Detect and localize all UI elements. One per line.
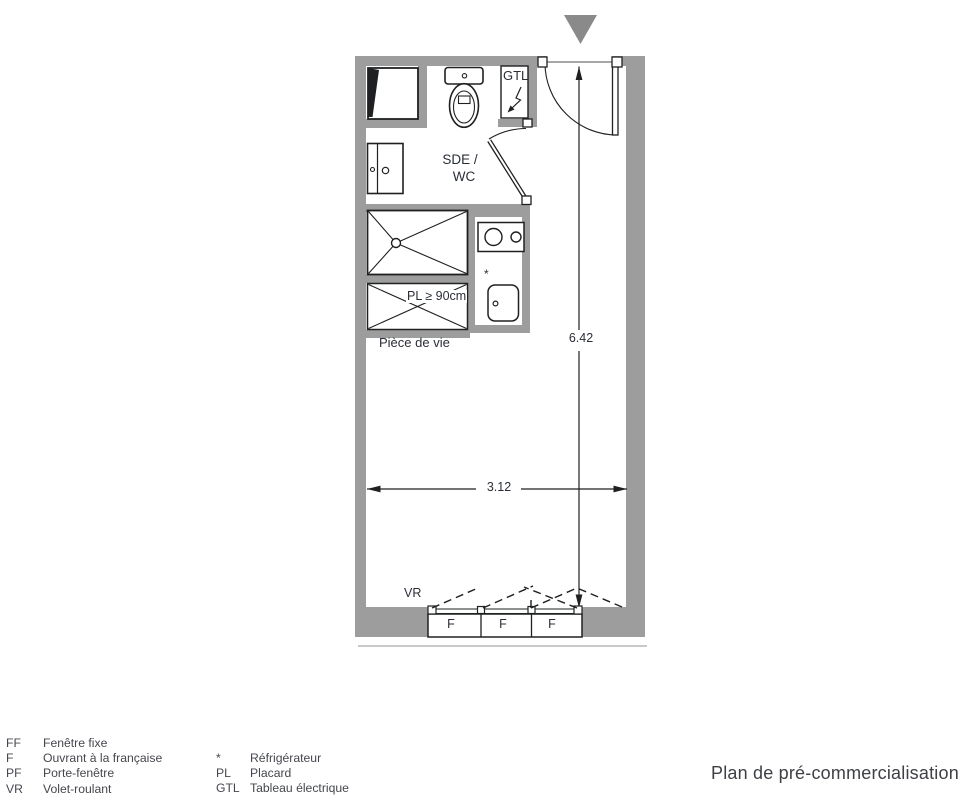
- dimension-value-width: 3.12: [477, 481, 521, 494]
- window-pane-label-3: F: [536, 618, 568, 631]
- label-placard-size: PL ≥ 90cm: [406, 290, 467, 303]
- legend-column-1: FF Fenêtre fixe F Ouvrant à la française…: [6, 736, 162, 797]
- window-pane-label-1: F: [435, 618, 467, 631]
- fridge-asterisk-marker: *: [484, 268, 489, 281]
- legend-code: *: [216, 751, 250, 766]
- label-gtl: GTL: [503, 69, 528, 83]
- legend-row: F Ouvrant à la française: [6, 751, 162, 766]
- legend-code: GTL: [216, 781, 250, 796]
- toilet: [445, 68, 483, 128]
- shower-tray: [368, 211, 468, 275]
- legend-label: Ouvrant à la française: [43, 751, 162, 766]
- door-swing-arc: [545, 63, 617, 135]
- floor-plan-page: GTL SDE / WC PL ≥ 90cm * Pièce de vie 6.…: [0, 0, 978, 800]
- floor-plan-drawing: [0, 0, 978, 800]
- legend-label: Réfrigérateur: [250, 751, 321, 766]
- door-leaf: [613, 62, 619, 135]
- legend-row: * Réfrigérateur: [216, 751, 349, 766]
- legend-row: VR Volet-roulant: [6, 782, 162, 797]
- entrance-door: [538, 57, 622, 135]
- entrance-marker-triangle: [564, 15, 597, 44]
- dimension-value-height: 6.42: [559, 332, 603, 345]
- legend-code: FF: [6, 736, 43, 751]
- legend-row: PF Porte-fenêtre: [6, 766, 162, 781]
- legend-label: Fenêtre fixe: [43, 736, 107, 751]
- legend-label: Volet-roulant: [43, 782, 111, 797]
- document-title: Plan de pré-commercialisation: [711, 763, 971, 784]
- legend-label: Porte-fenêtre: [43, 766, 114, 781]
- legend-label: Tableau électrique: [250, 781, 349, 796]
- legend-row: FF Fenêtre fixe: [6, 736, 162, 751]
- legend-row: PL Placard: [216, 766, 349, 781]
- label-living-room: Pièce de vie: [379, 336, 450, 350]
- legend-label: Placard: [250, 766, 291, 781]
- label-room-wc: WC: [440, 170, 488, 184]
- legend-code: PL: [216, 766, 250, 781]
- facade-line: [358, 645, 647, 647]
- bathroom-door: [488, 119, 532, 205]
- legend-code: F: [6, 751, 43, 766]
- window-pane-label-2: F: [487, 618, 519, 631]
- window-swing-dashes: [432, 586, 622, 608]
- legend-code: VR: [6, 782, 43, 797]
- shower-drain: [392, 239, 401, 248]
- legend-column-2: * Réfrigérateur PL Placard GTL Tableau é…: [216, 751, 349, 797]
- door-swing-arc: [489, 129, 526, 140]
- legend-row: GTL Tableau électrique: [216, 781, 349, 796]
- label-room-sde: SDE /: [436, 153, 484, 167]
- vanity-cabinet: [368, 144, 404, 194]
- legend-code: PF: [6, 766, 43, 781]
- label-shutter-vr: VR: [404, 587, 421, 600]
- duct-shaft: [368, 68, 418, 119]
